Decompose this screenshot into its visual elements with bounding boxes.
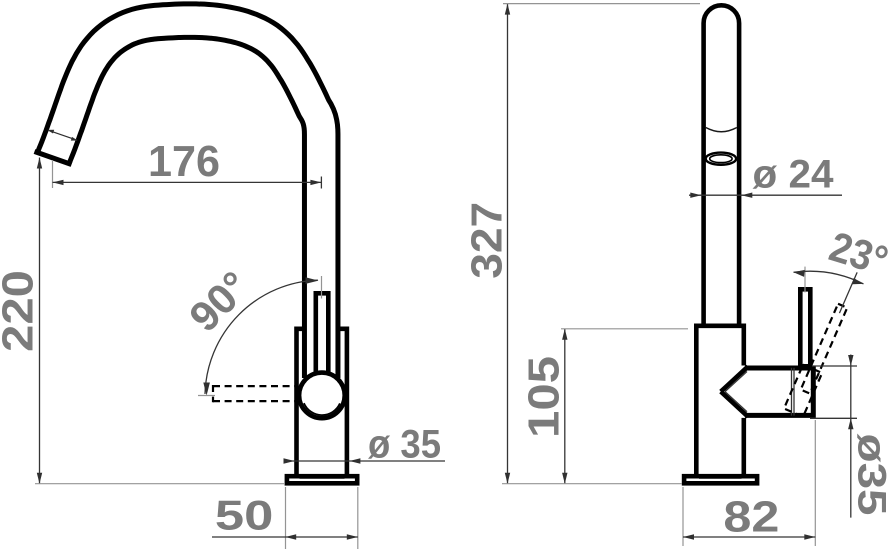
svg-text:176: 176 bbox=[148, 137, 220, 186]
svg-text:82: 82 bbox=[723, 493, 779, 542]
svg-text:ø 24: ø 24 bbox=[753, 153, 835, 197]
svg-text:105: 105 bbox=[520, 356, 569, 438]
svg-text:50: 50 bbox=[215, 492, 274, 539]
svg-text:327: 327 bbox=[463, 202, 512, 279]
svg-text:ø35: ø35 bbox=[849, 434, 889, 516]
svg-text:ø 35: ø 35 bbox=[368, 423, 441, 467]
svg-text:220: 220 bbox=[0, 270, 43, 352]
